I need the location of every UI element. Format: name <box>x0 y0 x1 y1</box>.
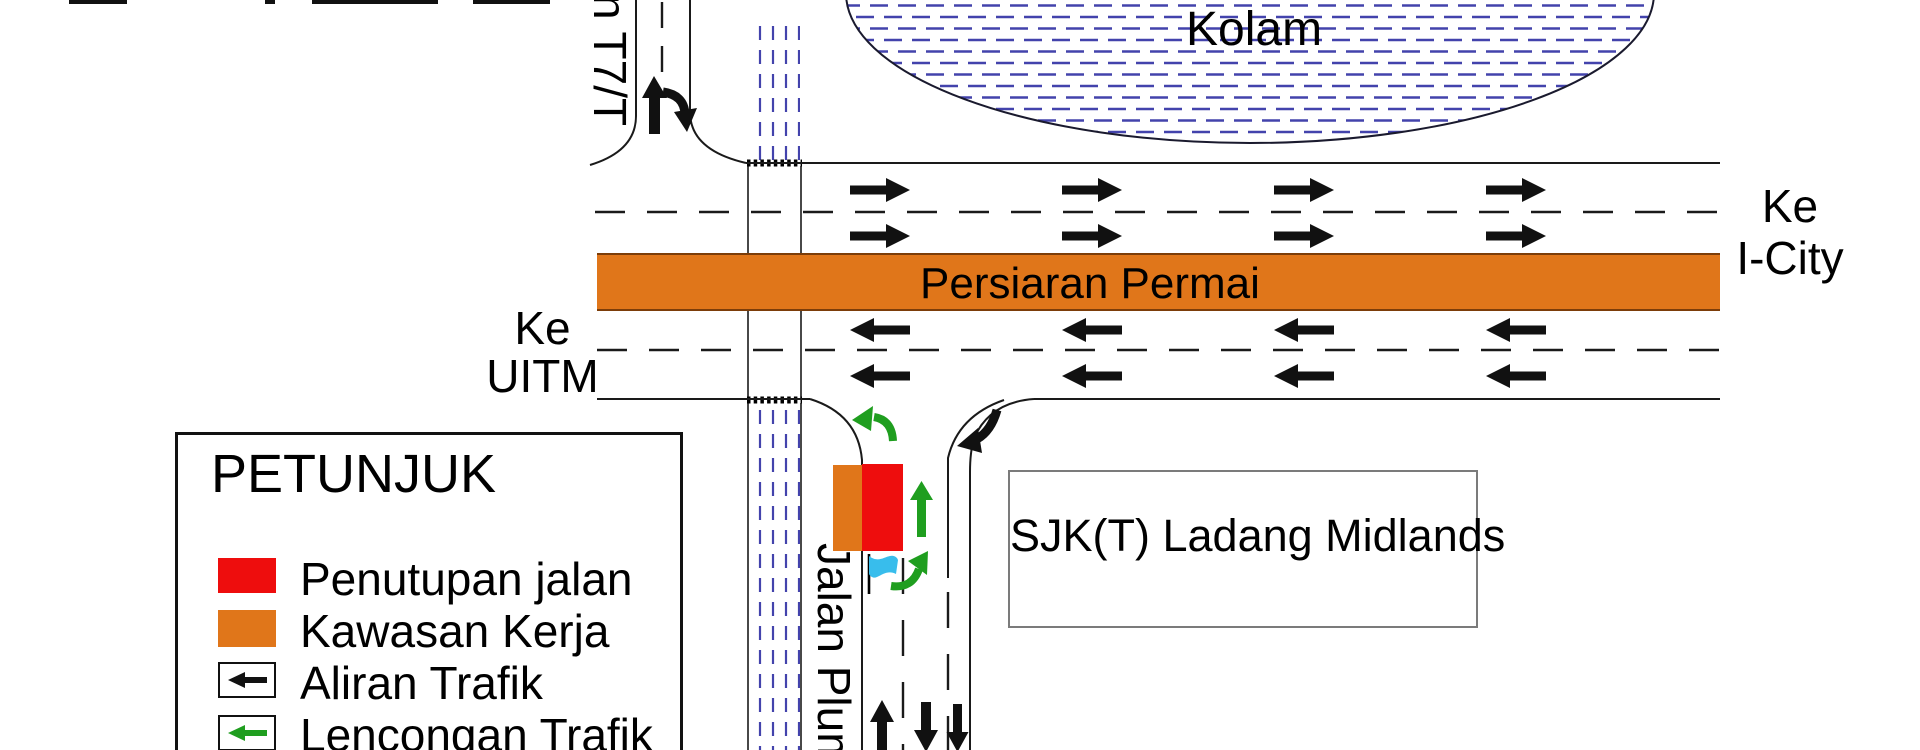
school-label: SJK(T) Ladang Midlands <box>1010 512 1476 561</box>
down-arrow-2 <box>947 704 969 750</box>
legend-label-traffic-diversion: Lencongan Trafik <box>300 708 653 750</box>
cutoff-fragment <box>312 0 438 4</box>
diversion-left-hook-head <box>852 406 873 431</box>
diversion-left-hook-tail <box>874 417 893 441</box>
traffic-management-plan: Persiaran Permai Kolam Ke I-City Ke UITM… <box>0 0 1920 750</box>
black-left-arrow-icon <box>225 669 269 691</box>
destination-west-line2: UITM <box>455 352 630 400</box>
legend-swatch-traffic-flow <box>218 662 276 698</box>
school-box: SJK(T) Ladang Midlands <box>1008 470 1478 628</box>
t7t-right-edge <box>690 0 746 163</box>
lower-road-inner-curve <box>948 400 1004 578</box>
destination-east-line1: Ke <box>1705 180 1875 232</box>
side-road-top-label: n T7/T <box>584 0 634 126</box>
t7t-junction-arrows <box>642 76 697 134</box>
main-road-label: Persiaran Permai <box>920 260 1260 308</box>
legend-title: PETUNJUK <box>211 443 496 505</box>
legend-label-road-closure: Penutupan jalan <box>300 552 633 606</box>
down-arrow-1 <box>914 702 938 750</box>
destination-west-line1: Ke <box>455 304 630 352</box>
diversion-up-arrow <box>910 481 933 537</box>
legend-label-traffic-flow: Aliran Trafik <box>300 656 543 710</box>
pond-label: Kolam <box>1186 4 1322 56</box>
side-road-bottom-label: Jalan Plum <box>808 543 858 750</box>
lower-road-flow-arrows <box>870 700 969 750</box>
main-road-median: Persiaran Permai <box>597 253 1720 311</box>
road-closure-marker <box>862 464 903 551</box>
straight-arrow <box>642 76 667 134</box>
destination-west-label: Ke UITM <box>455 304 630 400</box>
main-to-side-turn-arrow <box>957 410 997 453</box>
legend-swatch-work-area <box>218 610 276 647</box>
legend-box: PETUNJUK Penutupan jalan Kawasan Kerja A… <box>175 432 683 750</box>
destination-east-label: Ke I-City <box>1705 180 1875 284</box>
legend-swatch-traffic-diversion <box>218 715 276 750</box>
hatched-strip <box>748 26 801 750</box>
cutoff-fragment <box>69 0 127 4</box>
cutoff-fragment <box>473 0 550 4</box>
work-area-marker <box>833 465 862 551</box>
legend-swatch-road-closure <box>218 558 276 593</box>
up-arrow <box>870 700 894 750</box>
green-left-arrow-icon <box>225 722 269 744</box>
destination-east-line2: I-City <box>1705 232 1875 284</box>
traffic-flow-arrows-westbound <box>850 318 1546 388</box>
legend-label-work-area: Kawasan Kerja <box>300 604 609 658</box>
cutoff-fragment <box>265 0 275 4</box>
